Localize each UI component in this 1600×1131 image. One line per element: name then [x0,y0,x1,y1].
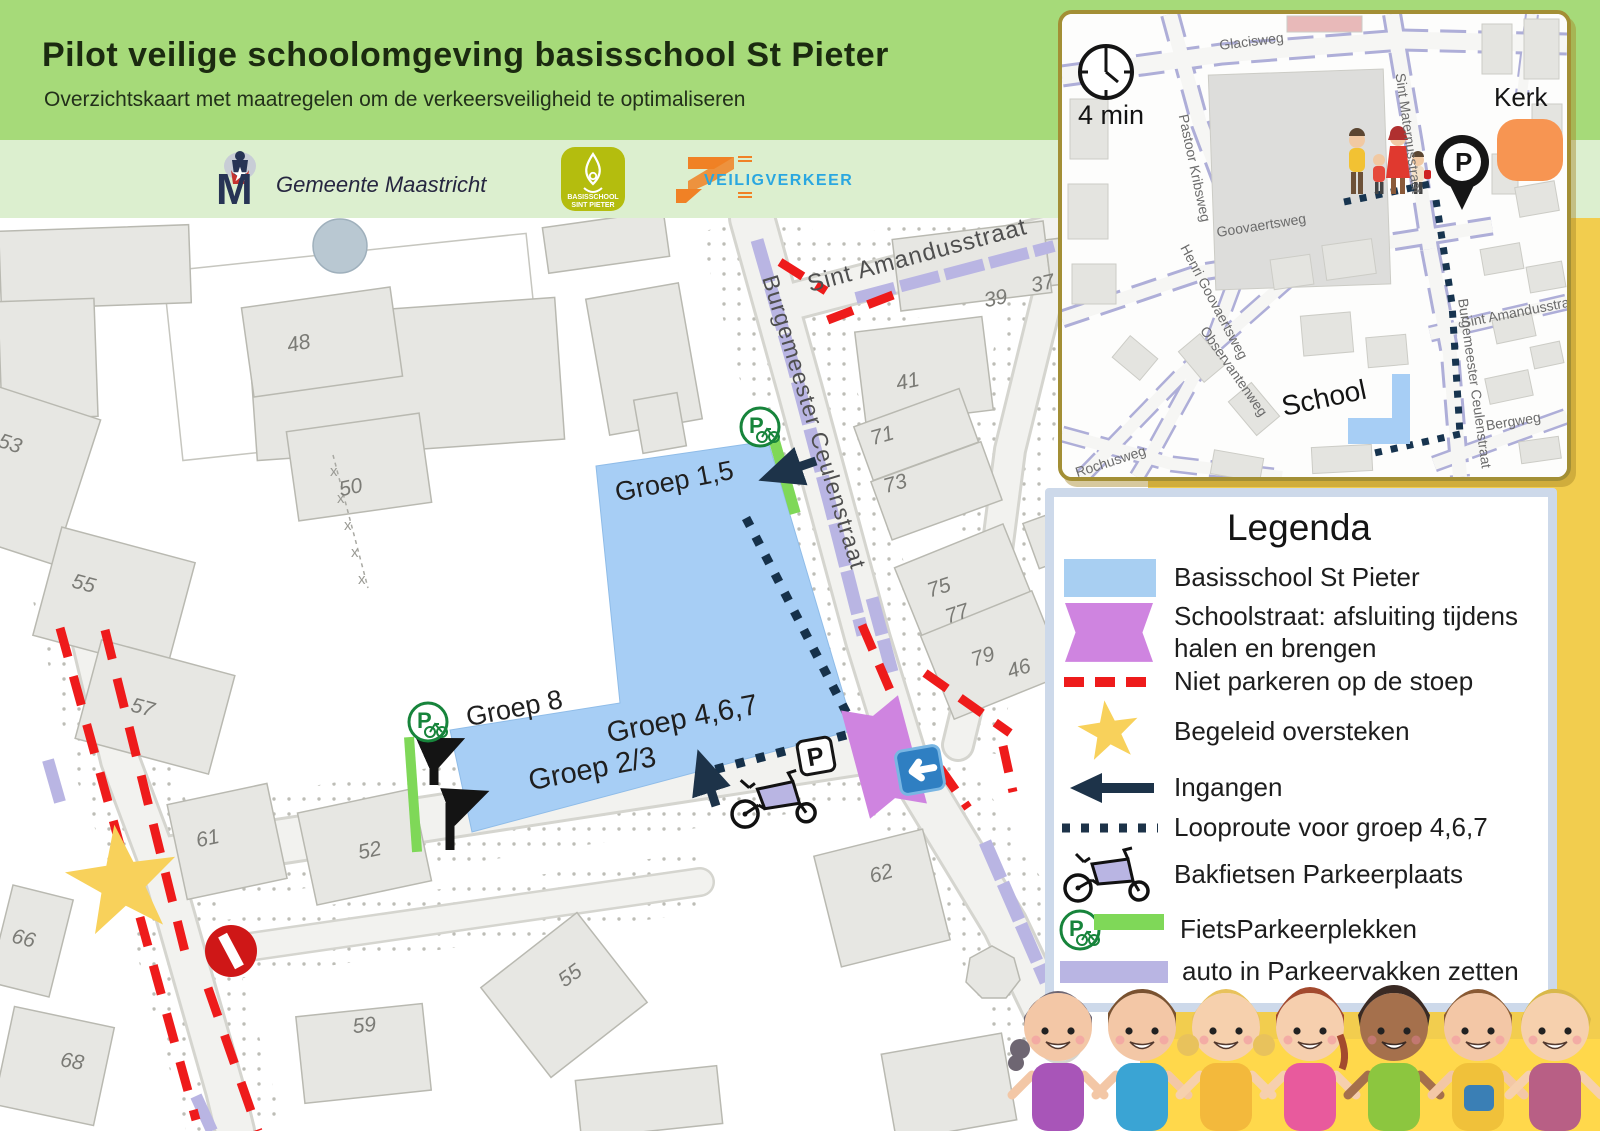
schoolstraat-flag-icon [1065,603,1155,663]
star-icon [1077,700,1143,764]
cargo-bike-icon [1062,846,1158,904]
svg-text:x: x [330,463,338,480]
svg-text:59: 59 [352,1013,378,1038]
walk-time: 4 min [1078,100,1144,130]
arrow-left-icon [1062,766,1158,810]
school-logo-line1: BASISSCHOOL [567,194,619,201]
basisschool-logo: BASISSCHOOL SINT PIETER [560,146,626,212]
legend-item-bikepark: FietsParkeerplekken [1058,906,1540,954]
dotted-route-icon [1060,819,1160,837]
inset-map: P [1058,10,1571,481]
svg-text:x: x [351,544,359,561]
svg-text:Gemeente Maastricht: Gemeente Maastricht [276,172,487,197]
legend-item-entrances: Ingangen [1058,766,1540,810]
legend-title: Legenda [1058,507,1540,549]
page-subtitle: Overzichtskaart met maatregelen om de ve… [44,88,745,112]
one-way-sign [895,745,946,796]
veiligverkeer-logo: VEILIGVERKEER [674,151,864,207]
kerk-label: Kerk [1494,82,1548,112]
legend-item-cargo: Bakfietsen Parkeerplaats [1058,846,1540,904]
parking-sign: P [796,736,835,775]
legend-item-schoolstraat: Schoolstraat: afsluiting tijdens halen e… [1058,601,1540,664]
clock-icon [1080,46,1132,98]
legend: Legenda Basisschool St Pieter Schoolstra… [1045,488,1557,1012]
legend-item-school: Basisschool St Pieter [1058,557,1540,599]
veiligverkeer-wordmark: VEILIGVERKEER [704,172,853,189]
no-entry-sign [205,925,257,977]
legend-item-no-parking: Niet parkeren op de stoep [1058,666,1540,698]
bike-parking-icon [1058,906,1168,954]
svg-text:x: x [344,517,352,534]
map-circle-feature [313,219,367,273]
child-1 [1008,991,1104,1131]
poster: P [0,0,1600,1131]
legend-item-route: Looproute voor groep 4,6,7 [1058,812,1540,844]
svg-text:61: 61 [194,825,222,852]
kerk-marker [1497,119,1563,181]
svg-text:M: M [216,165,253,210]
children-illustration [990,975,1600,1131]
p-letter: P [1455,147,1472,177]
gemeente-maastricht-logo: M Gemeente Maastricht [212,148,512,210]
svg-text:41: 41 [894,368,922,395]
svg-text:x: x [358,571,366,588]
red-dash-icon [1062,672,1158,692]
school-swatch-icon [1062,557,1158,599]
svg-text:68: 68 [59,1048,86,1075]
legend-item-crossing: Begeleid oversteken [1058,700,1540,764]
school-logo-line2: SINT PIETER [571,202,614,209]
page-title: Pilot veilige schoolomgeving basisschool… [42,36,889,75]
